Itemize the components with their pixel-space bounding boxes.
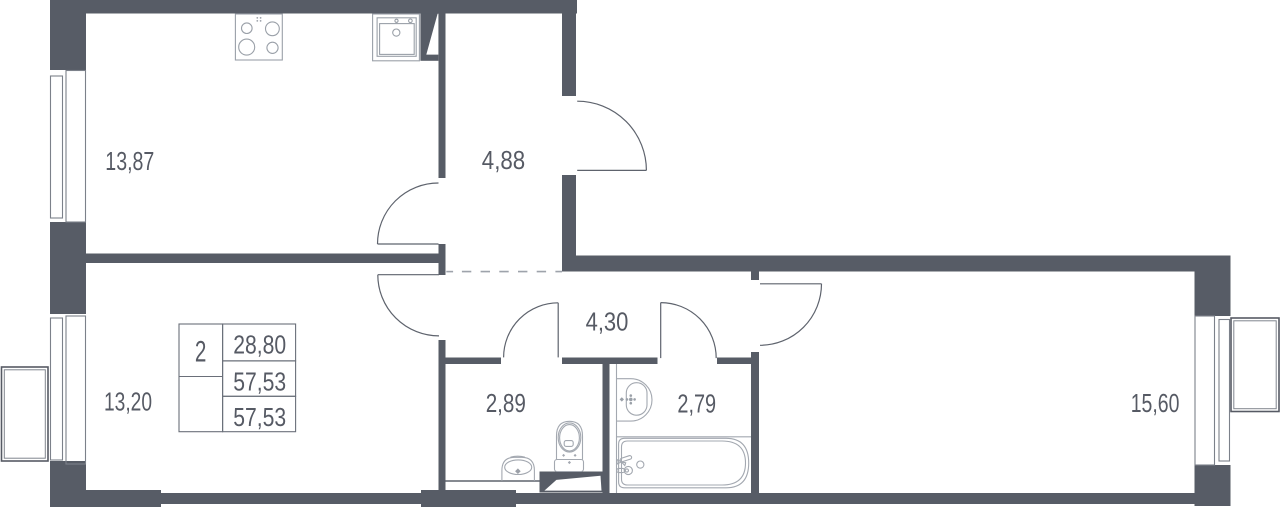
svg-text:57,53: 57,53 xyxy=(233,404,286,432)
svg-text:4,88: 4,88 xyxy=(482,147,525,175)
svg-text:28,80: 28,80 xyxy=(233,331,286,359)
svg-text:57,53: 57,53 xyxy=(233,369,286,397)
svg-text:4,30: 4,30 xyxy=(586,308,629,336)
svg-text:2: 2 xyxy=(195,336,207,369)
svg-text:15,60: 15,60 xyxy=(1131,390,1180,418)
svg-text:2,79: 2,79 xyxy=(677,390,716,418)
svg-text:13,20: 13,20 xyxy=(104,388,152,416)
svg-text:2,89: 2,89 xyxy=(486,390,526,418)
svg-text:13,87: 13,87 xyxy=(105,148,154,176)
